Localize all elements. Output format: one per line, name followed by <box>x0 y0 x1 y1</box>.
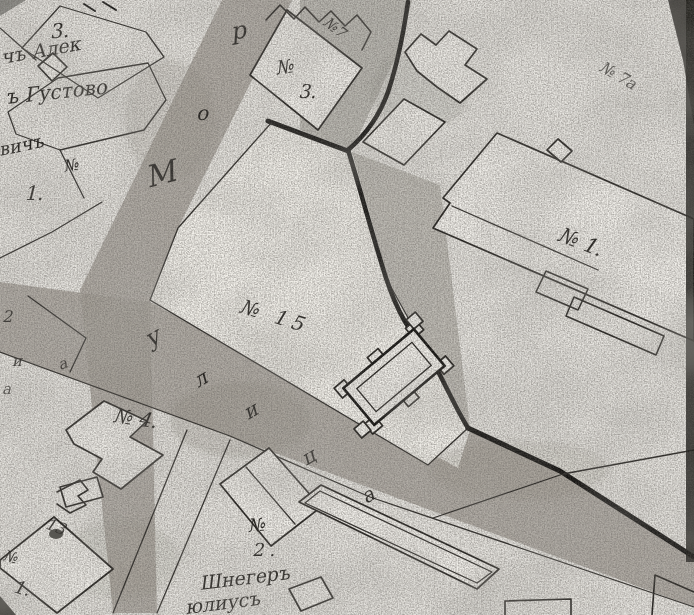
scan-grain-texture <box>0 0 694 615</box>
scanned-map-page: 3. чъ Алек ъ Густово вичъ № 1. № 3. №7 №… <box>0 0 694 615</box>
cadastral-map-scan: 3. чъ Алек ъ Густово вичъ № 1. № 3. №7 №… <box>0 0 694 615</box>
